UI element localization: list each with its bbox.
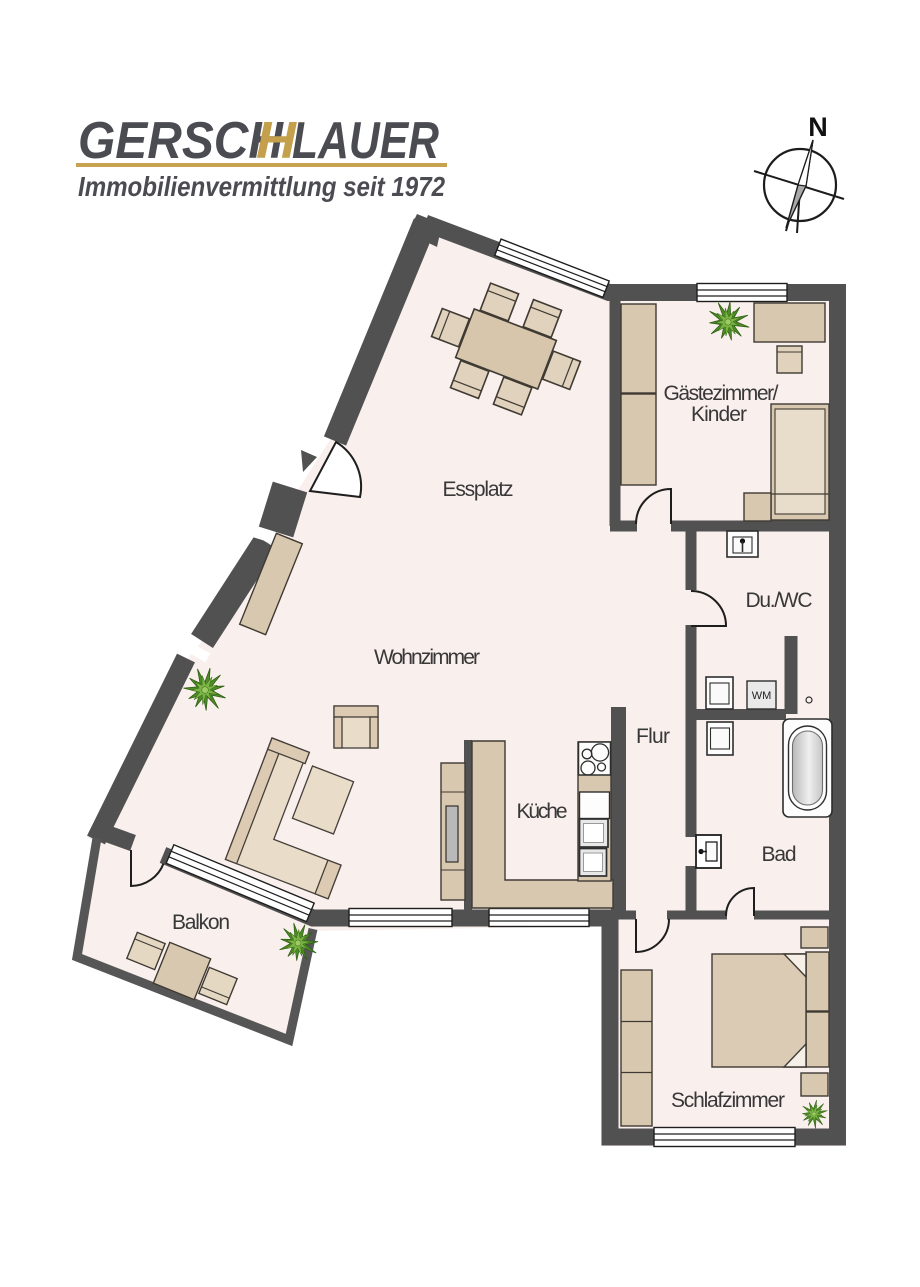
svg-text:Kinder: Kinder — [691, 403, 747, 426]
svg-text:Balkon: Balkon — [172, 911, 230, 934]
svg-text:WM: WM — [752, 690, 772, 702]
svg-text:Bad: Bad — [762, 843, 797, 866]
svg-text:Schlafzimmer: Schlafzimmer — [671, 1089, 785, 1112]
svg-text:Du./WC: Du./WC — [746, 589, 813, 612]
svg-text:Gästezimmer/: Gästezimmer/ — [664, 382, 779, 405]
svg-text:LAUER: LAUER — [292, 112, 439, 170]
svg-text:Flur: Flur — [636, 725, 670, 748]
svg-text:Essplatz: Essplatz — [443, 478, 514, 501]
svg-text:Wohnzimmer: Wohnzimmer — [374, 646, 480, 669]
svg-text:Immobilienvermittlung seit 197: Immobilienvermittlung seit 1972 — [78, 171, 445, 202]
svg-text:Küche: Küche — [517, 800, 568, 823]
svg-text:N: N — [808, 112, 828, 142]
svg-text:GERSCH: GERSCH — [78, 112, 284, 170]
